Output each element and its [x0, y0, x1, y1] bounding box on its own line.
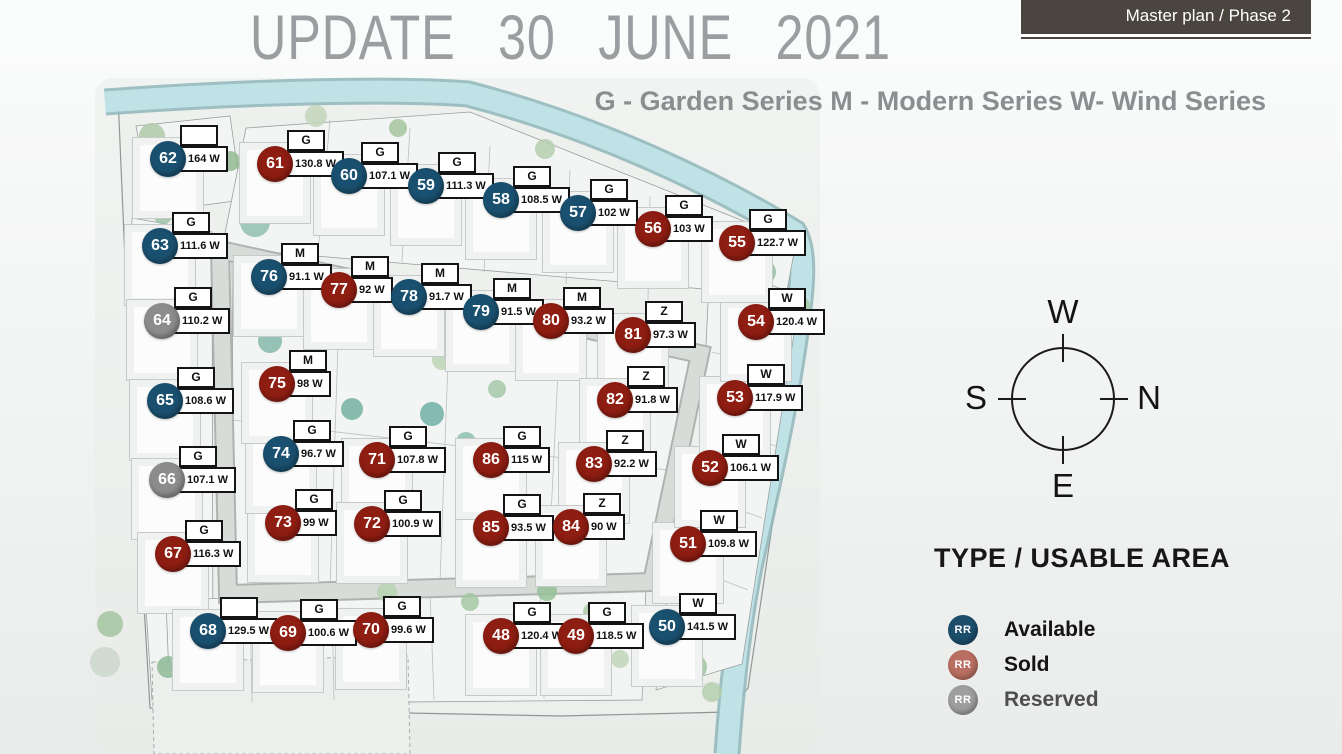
- lot-series-box: W: [747, 364, 785, 385]
- lot-number-badge: 49: [558, 618, 594, 654]
- lot-number-badge: 51: [670, 526, 706, 562]
- lot-number-badge: 81: [615, 317, 651, 353]
- lot-number-badge: 76: [251, 259, 287, 295]
- lot-series-box: G: [503, 426, 541, 447]
- lot-series-box: G: [295, 489, 333, 510]
- lot-series-box: M: [493, 278, 531, 299]
- lot-series-box: G: [300, 599, 338, 620]
- lot-series-box: W: [679, 593, 717, 614]
- lot-number-badge: 67: [155, 536, 191, 572]
- lot-series-box: G: [177, 367, 215, 388]
- compass-south-label: S: [965, 379, 987, 417]
- lot-number-badge: 65: [147, 383, 183, 419]
- lot-number-badge: 86: [473, 442, 509, 478]
- project-subtitle: Master plan / Phase 2: [1041, 6, 1291, 26]
- master-plan-page: G120.4 W48G118.5 W49W141.5 W50W109.8 W51…: [0, 0, 1342, 754]
- lot-number-badge: 79: [463, 294, 499, 330]
- lot-series-box: G: [665, 195, 703, 216]
- lot-number-badge: 55: [719, 225, 755, 261]
- lot-number-badge: 66: [149, 462, 185, 498]
- lot-series-box: G: [384, 490, 422, 511]
- compass-west-label: W: [963, 293, 1163, 331]
- lot-number-badge: 50: [649, 609, 685, 645]
- legend-label-available: Available: [1004, 618, 1095, 642]
- lot-series-box: G: [438, 152, 476, 173]
- lot-number-badge: 80: [533, 303, 569, 339]
- lot-number-badge: 75: [259, 366, 295, 402]
- lot-number-badge: 85: [473, 510, 509, 546]
- lot-series-box: G: [590, 179, 628, 200]
- lot-series-box: G: [513, 166, 551, 187]
- lot-number-badge: 73: [265, 505, 301, 541]
- compass: W S N E: [963, 293, 1163, 505]
- lot-series-box: [220, 597, 258, 618]
- lot-series-box: W: [768, 288, 806, 309]
- legend-row-available: RR Available: [948, 614, 1099, 645]
- legend-label-sold: Sold: [1004, 653, 1050, 677]
- lot-series-box: Z: [583, 493, 621, 514]
- lot-series-box: M: [351, 256, 389, 277]
- lot-number-badge: 83: [576, 446, 612, 482]
- lot-series-box: M: [563, 287, 601, 308]
- project-box: THE RESORT VILLAS Master plan / Phase 2: [1021, 0, 1311, 34]
- lot-series-box: [180, 125, 218, 146]
- lot-number-badge: 52: [692, 450, 728, 486]
- legend-row-sold: RR Sold: [948, 649, 1099, 680]
- compass-east-label: E: [963, 467, 1163, 505]
- legend-heading: TYPE / USABLE AREA: [934, 543, 1230, 574]
- lot-number-badge: 84: [553, 509, 589, 545]
- lot-number-badge: 59: [408, 168, 444, 204]
- lot-series-box: G: [513, 602, 551, 623]
- lot-number-badge: 63: [142, 228, 178, 264]
- lot-number-badge: 62: [150, 141, 186, 177]
- lot-number-badge: 74: [263, 436, 299, 472]
- lot-number-badge: 71: [359, 442, 395, 478]
- lot-series-box: W: [722, 434, 760, 455]
- lot-number-badge: 48: [483, 618, 519, 654]
- legend-row-reserved: RR Reserved: [948, 684, 1099, 715]
- lot-series-box: G: [174, 287, 212, 308]
- lot-number-badge: 58: [483, 182, 519, 218]
- lot-number-badge: 82: [597, 382, 633, 418]
- compass-north-label: N: [1137, 379, 1161, 417]
- lot-series-box: G: [287, 130, 325, 151]
- project-name: THE RESORT VILLAS: [1041, 0, 1291, 4]
- lot-series-box: G: [172, 212, 210, 233]
- lot-number-badge: 77: [321, 272, 357, 308]
- lot-series-box: G: [389, 426, 427, 447]
- lot-series-box: W: [700, 510, 738, 531]
- lot-number-badge: 64: [144, 303, 180, 339]
- lot-number-badge: 53: [717, 380, 753, 416]
- legend-label-reserved: Reserved: [1004, 688, 1099, 712]
- lot-number-badge: 72: [354, 506, 390, 542]
- lot-series-box: Z: [606, 430, 644, 451]
- lots-layer: G120.4 W48G118.5 W49W141.5 W50W109.8 W51…: [0, 0, 960, 754]
- lot-series-box: G: [361, 142, 399, 163]
- lot-series-box: G: [293, 420, 331, 441]
- available-status-icon: RR: [948, 615, 978, 645]
- lot-series-box: G: [185, 520, 223, 541]
- lot-series-box: G: [179, 446, 217, 467]
- lot-series-box: G: [503, 494, 541, 515]
- lot-series-box: Z: [645, 301, 683, 322]
- lot-number-badge: 57: [560, 195, 596, 231]
- lot-number-badge: 68: [190, 613, 226, 649]
- lot-series-box: Z: [627, 366, 665, 387]
- lot-number-badge: 61: [257, 146, 293, 182]
- status-legend: RR Available RR Sold RR Reserved: [948, 614, 1099, 719]
- lot-series-box: M: [281, 243, 319, 264]
- lot-number-badge: 78: [391, 279, 427, 315]
- reserved-status-icon: RR: [948, 685, 978, 715]
- lot-number-badge: 69: [270, 615, 306, 651]
- lot-number-badge: 54: [738, 304, 774, 340]
- lot-number-badge: 70: [353, 612, 389, 648]
- lot-number-badge: 60: [331, 158, 367, 194]
- lot-series-box: M: [289, 350, 327, 371]
- lot-series-box: G: [383, 596, 421, 617]
- lot-series-box: G: [588, 602, 626, 623]
- lot-number-badge: 56: [635, 211, 671, 247]
- sold-status-icon: RR: [948, 650, 978, 680]
- lot-series-box: G: [749, 209, 787, 230]
- lot-series-box: M: [421, 263, 459, 284]
